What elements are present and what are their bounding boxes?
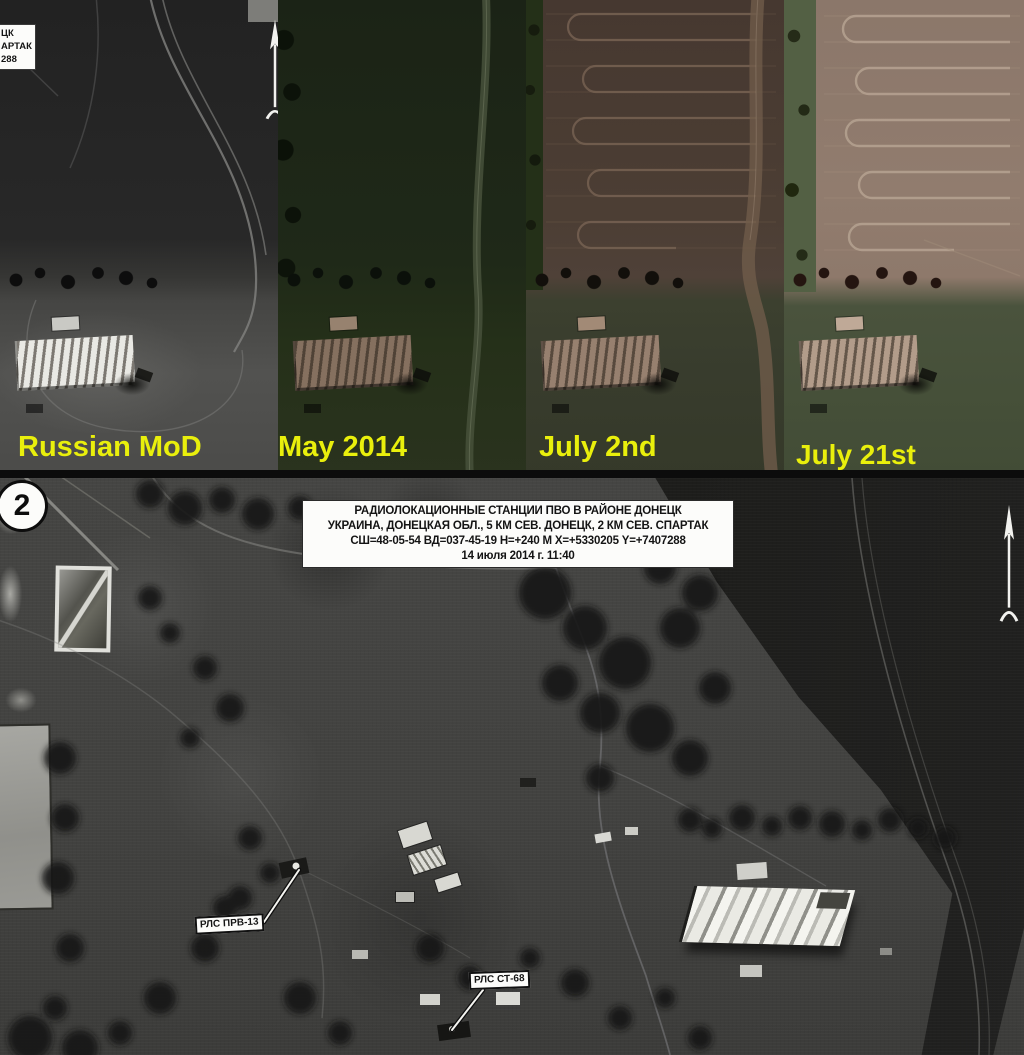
caption-line-3: СШ=48-05-54 ВД=037-45-19 Н=+240 М Х=+533…: [305, 534, 731, 549]
image-caption-box: РАДИОЛОКАЦИОННЫЕ СТАНЦИИ ПВО В РАЙОНЕ ДО…: [302, 500, 734, 568]
vehicle: [578, 316, 606, 330]
radar-vehicle: [384, 366, 436, 402]
tree-row: [528, 260, 706, 300]
radar-vehicle: [106, 366, 158, 402]
caption-fragment: 288: [1, 53, 35, 66]
small-structure: [552, 404, 569, 413]
panel-label: May 2014: [278, 431, 407, 464]
small-structure: [304, 404, 321, 413]
tree-row: [786, 260, 964, 300]
panel-russian-mod: ЦК АРТАК 288 Russian MoD: [0, 0, 278, 478]
tree-row: [280, 260, 458, 300]
vehicle: [836, 316, 864, 330]
panel-label: July 2nd: [539, 431, 657, 464]
panel-divider: [0, 470, 1024, 478]
radar-vehicle: [890, 366, 942, 402]
satellite-comparison-montage: ЦК АРТАК 288 Russian MoD May 2014: [0, 0, 1024, 1055]
caption-fragment: ЦК: [1, 27, 35, 40]
north-arrow-icon: [262, 18, 278, 122]
cutoff-caption-box: ЦК АРТАК 288: [0, 24, 36, 70]
caption-fragment: АРТАК: [1, 40, 35, 53]
panel-may-2014: May 2014: [278, 0, 526, 478]
panel-label: July 21st: [796, 439, 916, 471]
radar-label-prv13: РЛС ПРВ-13: [195, 913, 264, 935]
radar-vehicle: [632, 366, 684, 402]
small-structure: [810, 404, 827, 413]
caption-line-2: УКРАИНА, ДОНЕЦКАЯ ОБЛ., 5 КМ СЕВ. ДОНЕЦК…: [305, 519, 731, 534]
vehicle: [52, 316, 80, 330]
radar-label-st68: РЛС СТ-68: [469, 970, 530, 990]
small-structure: [26, 404, 43, 413]
marker-number: 2: [14, 489, 31, 523]
panel-july-21st: July 21st: [784, 0, 1024, 478]
panel-label: Russian MoD: [18, 431, 202, 464]
caption-line-4: 14 июля 2014 г. 11:40: [305, 549, 731, 564]
vehicle: [330, 316, 358, 330]
north-arrow-icon: [996, 503, 1022, 625]
main-satellite-image: 2 РАДИОЛОКАЦИОННЫЕ СТАНЦИИ ПВО В РАЙОНЕ …: [0, 478, 1024, 1055]
panel-july-2nd: July 2nd: [526, 0, 784, 478]
caption-line-1: РАДИОЛОКАЦИОННЫЕ СТАНЦИИ ПВО В РАЙОНЕ ДО…: [305, 504, 731, 519]
tree-row: [2, 260, 180, 300]
